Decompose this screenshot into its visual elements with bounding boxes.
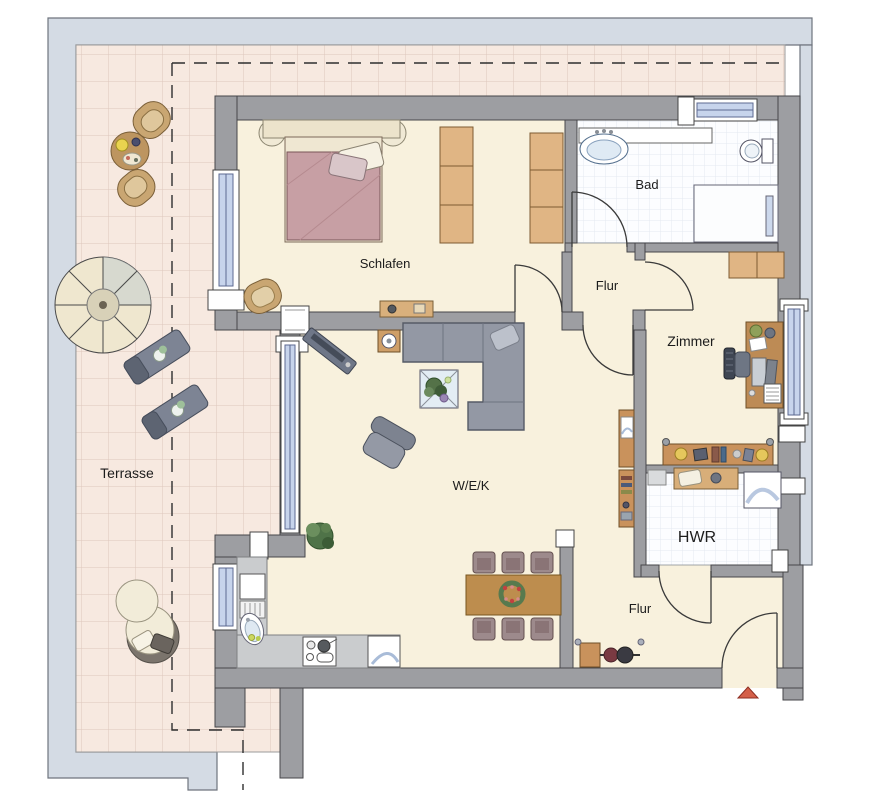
wall-wek-east — [634, 330, 646, 577]
dining-table-icon — [466, 575, 561, 615]
label-bad: Bad — [635, 177, 658, 192]
bedroom-bench-icon — [380, 301, 433, 317]
label-terrasse: Terrasse — [100, 465, 154, 481]
duct-north-icon — [678, 97, 694, 125]
duct-kitchen-icon — [250, 532, 268, 559]
wall-stub-sw-b — [280, 688, 303, 778]
wall-room-west-b — [633, 310, 645, 330]
fridge-icon — [240, 574, 265, 599]
wall-flur-divider — [560, 545, 573, 668]
wall-hall-west — [562, 252, 572, 312]
wall-bath-south-b — [627, 243, 778, 252]
terrace-table-icon — [111, 132, 149, 170]
utility-box-icon — [648, 470, 666, 485]
wall-south — [215, 668, 722, 688]
washing-machine-icon — [744, 472, 781, 508]
wall-hall-south-a — [562, 312, 583, 330]
side-table-icon — [378, 330, 400, 352]
window-bed-south-icon — [281, 306, 309, 334]
label-flur-oben: Flur — [596, 278, 619, 293]
vent-east-a-icon — [779, 426, 805, 442]
office-chair-icon — [724, 348, 750, 379]
dishwasher-icon — [368, 636, 400, 667]
desk-icon — [746, 322, 783, 408]
utility-bench-icon — [674, 468, 738, 489]
label-wek: W/E/K — [453, 478, 490, 493]
shower-icon — [694, 185, 778, 242]
toilet-icon — [740, 139, 773, 163]
window-kitchen-west-icon — [213, 564, 239, 630]
niche-east-icon — [772, 550, 788, 572]
floor-plan: Terrasse Schlafen Bad Flur Zimmer W/E/K … — [0, 0, 882, 800]
room-shelf-icon — [729, 252, 784, 278]
wall-cap-icon — [556, 530, 574, 547]
wall-stub-sw-a — [215, 688, 245, 727]
window-bath-north-icon — [693, 99, 757, 121]
floor-plan-svg: Terrasse Schlafen Bad Flur Zimmer W/E/K … — [0, 0, 882, 800]
wall-room-west-a — [635, 243, 645, 260]
vent-east-b-icon — [779, 478, 805, 494]
wall-south-east — [777, 668, 803, 688]
window-room-east-icon — [780, 299, 808, 425]
vent-bedroom-west-icon — [208, 290, 244, 310]
stove-icon — [303, 637, 337, 666]
wall-hwr-south-a — [641, 565, 659, 577]
label-schlafen: Schlafen — [360, 256, 411, 271]
coffee-table-icon — [420, 370, 458, 408]
parasol-icon — [55, 257, 151, 353]
plant-icon — [306, 523, 334, 549]
label-zimmer: Zimmer — [667, 333, 715, 349]
window-bedroom-west-icon — [213, 170, 239, 290]
wall-bed-south-a — [237, 312, 283, 330]
wall-bath-south-a — [565, 243, 572, 252]
label-hwr: HWR — [678, 529, 716, 546]
label-flur-unten: Flur — [629, 601, 652, 616]
wall-bath-west — [565, 120, 577, 243]
